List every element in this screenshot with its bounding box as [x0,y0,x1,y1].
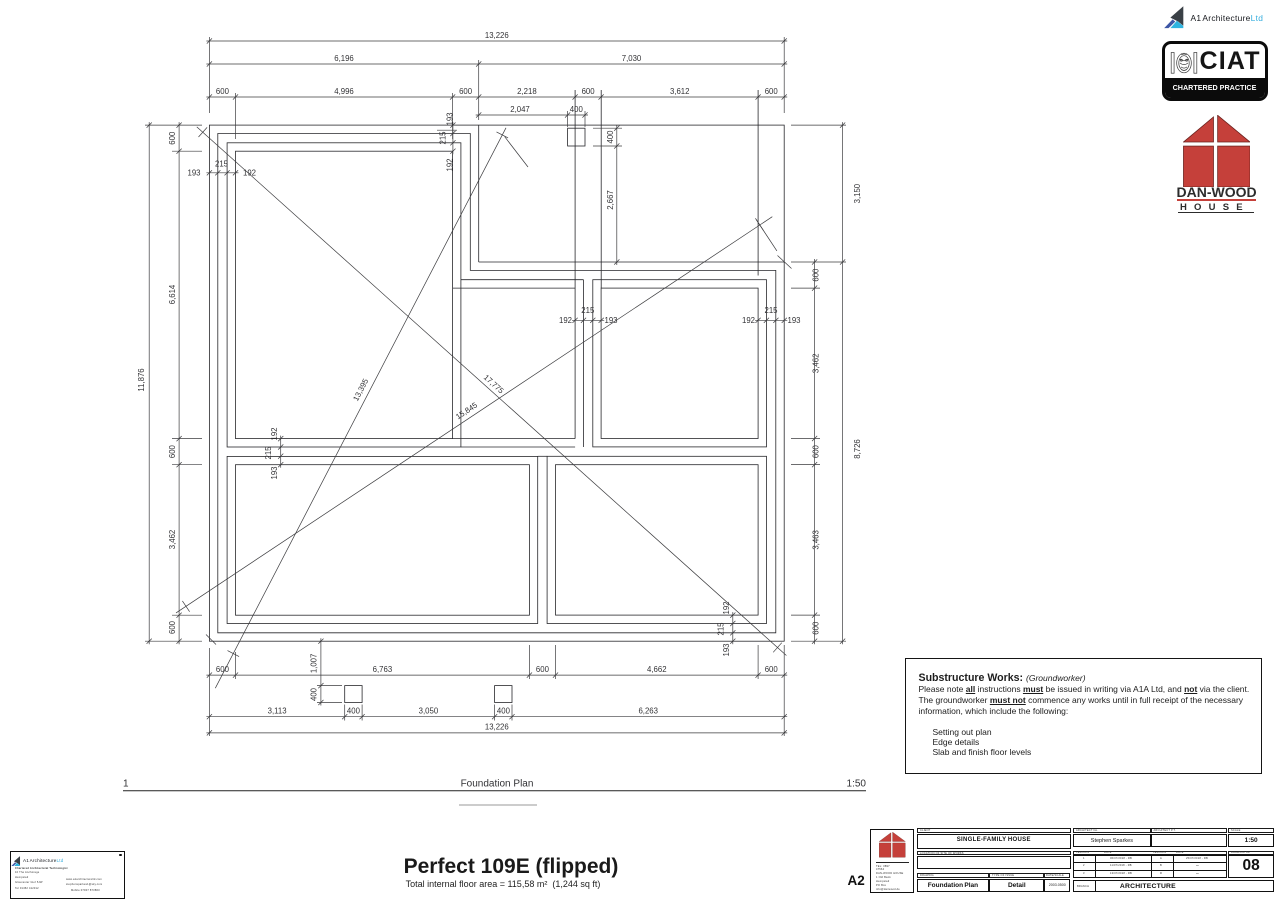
svg-text:4,996: 4,996 [334,87,354,96]
svg-text:6,196: 6,196 [334,54,354,63]
svg-text:600: 600 [536,665,550,674]
svg-text:11,876: 11,876 [137,368,146,391]
svg-text:215: 215 [717,622,726,636]
svg-text:600: 600 [812,444,821,458]
svg-text:13,226: 13,226 [485,723,509,732]
svg-text:600: 600 [812,268,821,282]
svg-text:600: 600 [216,665,230,674]
svg-text:6,763: 6,763 [373,665,393,674]
svg-text:3,050: 3,050 [419,707,439,716]
svg-text:600: 600 [168,620,177,634]
svg-text:192: 192 [742,316,755,325]
svg-text:1:50: 1:50 [847,779,867,790]
svg-text:600: 600 [459,87,473,96]
svg-text:600: 600 [765,665,779,674]
svg-text:192: 192 [446,158,455,171]
svg-text:3,113: 3,113 [268,707,287,716]
svg-text:4,662: 4,662 [647,665,667,674]
svg-text:193: 193 [187,169,200,178]
svg-text:215: 215 [215,160,229,169]
svg-text:192: 192 [559,316,572,325]
svg-text:3,462: 3,462 [812,354,821,374]
svg-text:15,845: 15,845 [454,400,479,421]
svg-text:192: 192 [270,427,279,440]
svg-text:215: 215 [264,446,273,460]
svg-text:600: 600 [216,87,230,96]
svg-text:7,030: 7,030 [622,54,642,63]
svg-text:400: 400 [310,687,319,701]
svg-text:193: 193 [605,316,618,325]
svg-text:600: 600 [812,621,821,635]
svg-text:13,226: 13,226 [485,31,509,40]
svg-text:215: 215 [439,131,448,145]
svg-text:600: 600 [582,87,596,96]
svg-text:400: 400 [606,130,615,144]
svg-text:600: 600 [168,131,177,145]
svg-text:2,667: 2,667 [606,190,615,210]
svg-text:2,218: 2,218 [517,87,537,96]
svg-text:17,775: 17,775 [482,373,506,396]
svg-text:192: 192 [722,601,731,614]
svg-text:6,614: 6,614 [168,284,177,304]
svg-text:3,150: 3,150 [853,183,862,203]
svg-text:193: 193 [788,316,801,325]
svg-text:215: 215 [764,306,778,315]
svg-text:193: 193 [722,643,731,656]
svg-text:3,463: 3,463 [812,530,821,550]
svg-text:600: 600 [168,444,177,458]
svg-text:400: 400 [497,707,511,716]
svg-text:193: 193 [270,466,279,479]
svg-text:1: 1 [123,779,129,790]
svg-text:215: 215 [581,306,595,315]
svg-text:600: 600 [765,87,779,96]
svg-text:400: 400 [347,707,361,716]
svg-text:193: 193 [446,112,455,125]
svg-text:1,007: 1,007 [310,654,319,674]
svg-text:Foundation Plan: Foundation Plan [461,779,534,790]
svg-text:192: 192 [243,169,256,178]
svg-text:6,263: 6,263 [638,707,658,716]
svg-text:13,395: 13,395 [351,377,370,403]
svg-text:8,726: 8,726 [853,439,862,459]
svg-text:2,047: 2,047 [510,105,530,114]
svg-text:3,612: 3,612 [670,87,690,96]
svg-text:3,462: 3,462 [168,530,177,550]
svg-text:400: 400 [570,105,584,114]
